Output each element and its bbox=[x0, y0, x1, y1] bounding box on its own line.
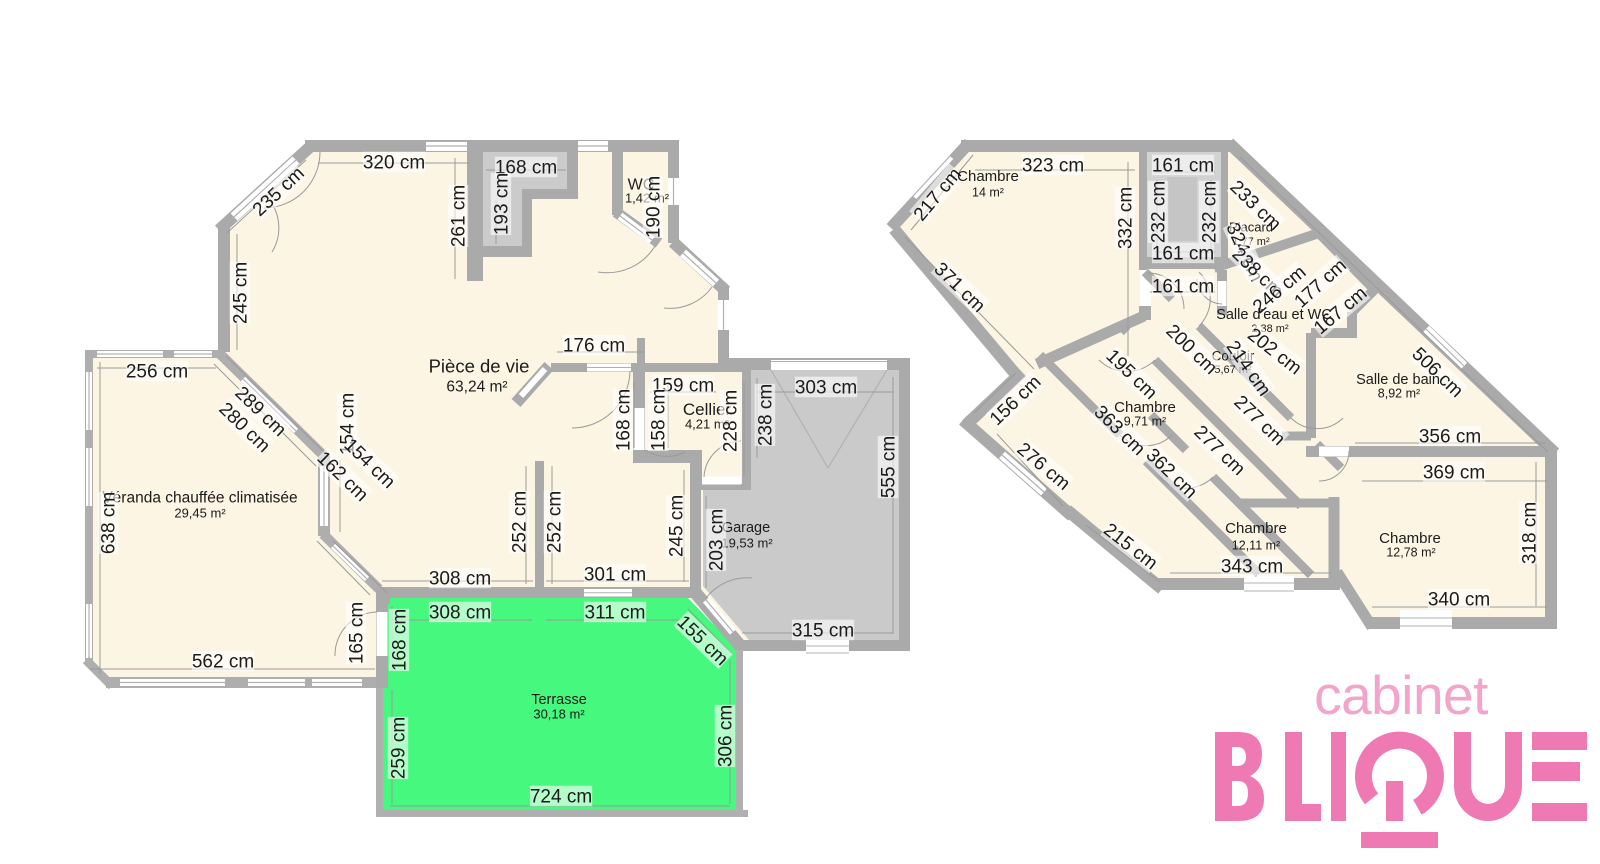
svg-text:308 cm: 308 cm bbox=[429, 603, 491, 624]
svg-text:193 cm: 193 cm bbox=[492, 173, 513, 235]
svg-text:29,45 m²: 29,45 m² bbox=[174, 506, 226, 521]
svg-text:161 cm: 161 cm bbox=[1152, 277, 1214, 298]
svg-text:308 cm: 308 cm bbox=[429, 569, 491, 590]
svg-text:318 cm: 318 cm bbox=[1520, 502, 1541, 564]
svg-text:332 cm: 332 cm bbox=[1116, 187, 1137, 249]
svg-text:Garage: Garage bbox=[722, 520, 770, 536]
svg-text:232 cm: 232 cm bbox=[1200, 181, 1221, 243]
svg-text:161 cm: 161 cm bbox=[1152, 156, 1214, 177]
svg-text:245 cm: 245 cm bbox=[667, 495, 688, 557]
svg-text:Salle d'eau et WC: Salle d'eau et WC bbox=[1216, 307, 1332, 323]
svg-text:cabinet: cabinet bbox=[1314, 664, 1488, 726]
svg-text:168 cm: 168 cm bbox=[390, 609, 411, 671]
svg-text:306 cm: 306 cm bbox=[716, 705, 737, 767]
svg-text:228 cm: 228 cm bbox=[721, 390, 742, 452]
svg-text:8,92 m²: 8,92 m² bbox=[1378, 386, 1420, 400]
svg-text:256 cm: 256 cm bbox=[126, 362, 188, 383]
svg-text:12,11 m²: 12,11 m² bbox=[1232, 538, 1280, 552]
svg-text:232 cm: 232 cm bbox=[1149, 181, 1170, 243]
svg-text:303 cm: 303 cm bbox=[795, 378, 857, 399]
svg-text:Chambre: Chambre bbox=[957, 168, 1019, 185]
svg-text:238 cm: 238 cm bbox=[756, 384, 777, 446]
svg-text:356 cm: 356 cm bbox=[1419, 427, 1481, 448]
svg-text:301 cm: 301 cm bbox=[584, 565, 646, 586]
svg-text:190 cm: 190 cm bbox=[644, 176, 665, 238]
svg-text:12,78 m²: 12,78 m² bbox=[1386, 545, 1435, 559]
svg-text:161 cm: 161 cm bbox=[1152, 244, 1214, 265]
svg-text:245 cm: 245 cm bbox=[231, 262, 252, 324]
svg-text:19,53 m²: 19,53 m² bbox=[721, 536, 773, 551]
svg-text:9,71 m²: 9,71 m² bbox=[1124, 414, 1166, 428]
svg-text:724 cm: 724 cm bbox=[530, 787, 592, 808]
svg-text:Chambre: Chambre bbox=[1225, 520, 1287, 537]
svg-text:343 cm: 343 cm bbox=[1221, 557, 1283, 578]
svg-text:259 cm: 259 cm bbox=[389, 717, 410, 779]
svg-text:340 cm: 340 cm bbox=[1428, 590, 1490, 611]
svg-text:323 cm: 323 cm bbox=[1022, 156, 1084, 177]
svg-text:252 cm: 252 cm bbox=[545, 491, 566, 553]
svg-text:30,18 m²: 30,18 m² bbox=[533, 707, 585, 722]
svg-text:Véranda chauffée climatisée: Véranda chauffée climatisée bbox=[102, 489, 297, 506]
svg-text:176 cm: 176 cm bbox=[563, 336, 625, 357]
svg-text:165 cm: 165 cm bbox=[347, 602, 368, 664]
svg-text:168 cm: 168 cm bbox=[614, 389, 635, 451]
svg-text:Pièce de vie: Pièce de vie bbox=[429, 356, 530, 377]
svg-text:320 cm: 320 cm bbox=[363, 153, 425, 174]
svg-text:638 cm: 638 cm bbox=[99, 492, 120, 554]
svg-text:369 cm: 369 cm bbox=[1423, 463, 1485, 484]
svg-text:252 cm: 252 cm bbox=[510, 491, 531, 553]
svg-text:14 m²: 14 m² bbox=[972, 185, 1004, 199]
svg-text:315 cm: 315 cm bbox=[792, 621, 854, 642]
svg-text:555 cm: 555 cm bbox=[879, 436, 900, 498]
svg-text:203 cm: 203 cm bbox=[707, 509, 728, 571]
svg-text:261 cm: 261 cm bbox=[449, 185, 470, 247]
svg-text:311 cm: 311 cm bbox=[585, 603, 646, 624]
svg-text:63,24 m²: 63,24 m² bbox=[446, 378, 507, 395]
svg-text:158 cm: 158 cm bbox=[649, 389, 670, 451]
svg-text:562 cm: 562 cm bbox=[192, 652, 254, 673]
